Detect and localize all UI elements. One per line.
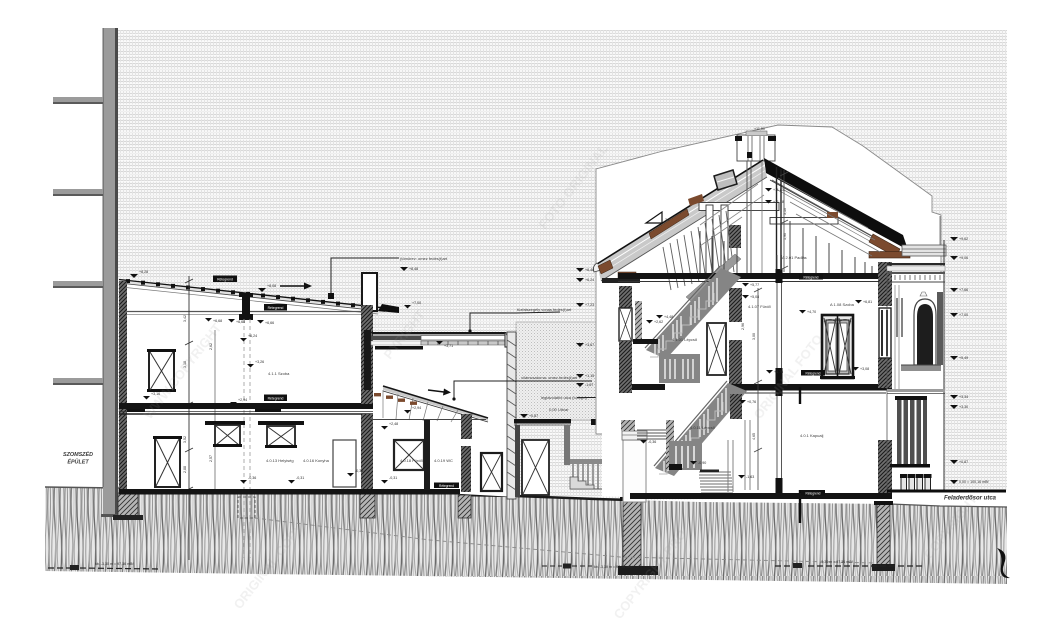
svg-text:+6,24: +6,24 — [248, 334, 257, 338]
svg-text:+3,26: +3,26 — [255, 360, 264, 364]
svg-text:+6,68: +6,68 — [236, 320, 245, 324]
svg-text:+0,76: +0,76 — [747, 400, 756, 404]
svg-text:+7,23: +7,23 — [585, 303, 594, 307]
svg-text:+3,34: +3,34 — [959, 395, 968, 399]
svg-text:-0,36: -0,36 — [355, 469, 363, 473]
svg-text:+0,87: +0,87 — [959, 460, 968, 464]
svg-text:4.1.1 Szoba: 4.1.1 Szoba — [268, 371, 290, 376]
svg-text:+8,28: +8,28 — [139, 270, 148, 274]
svg-text:+2,94: +2,94 — [238, 398, 247, 402]
svg-text:4.1.01 Lépcső: 4.1.01 Lépcső — [672, 337, 698, 342]
svg-text:4.0.16 Konyha: 4.0.16 Konyha — [303, 458, 330, 463]
svg-text:+11,18: +11,18 — [773, 200, 784, 204]
svg-text:0,00 Udvar: 0,00 Udvar — [549, 407, 569, 412]
svg-text:+3,71: +3,71 — [444, 344, 453, 348]
svg-text:+7,00: +7,00 — [412, 301, 421, 305]
svg-text:Rétegrend: Rétegrend — [217, 278, 233, 282]
svg-text:+6,81: +6,81 — [863, 300, 872, 304]
svg-text:+2,48: +2,48 — [389, 422, 398, 426]
svg-text:-0,31: -0,31 — [296, 476, 304, 480]
svg-text:4,65: 4,65 — [752, 433, 756, 440]
svg-text:4.0.11 Lépcső: 4.0.11 Lépcső — [690, 425, 716, 430]
svg-text:+5,08: +5,08 — [750, 295, 759, 299]
svg-text:34°: 34° — [665, 218, 671, 222]
svg-text:-0,90: -0,90 — [698, 461, 706, 465]
svg-text:4.0.13 Helyiség: 4.0.13 Helyiség — [266, 458, 294, 463]
svg-text:A 1.08 Szoba: A 1.08 Szoba — [830, 302, 855, 307]
svg-text:Rétegrend: Rétegrend — [806, 372, 821, 376]
svg-text:Rétegrend: Rétegrend — [439, 484, 454, 488]
svg-text:Rétegrend: Rétegrend — [268, 397, 284, 401]
svg-text:+8,48: +8,48 — [409, 267, 418, 271]
svg-text:+6,66: +6,66 — [265, 321, 274, 325]
svg-text:-1,63: -1,63 — [746, 475, 754, 479]
svg-text:(tömörev: omez fedés(t)art: (tömörev: omez fedés(t)art — [400, 256, 448, 261]
svg-text:+4,48: +4,48 — [664, 315, 673, 319]
svg-text:3,42: 3,42 — [183, 315, 187, 322]
svg-text:4.0.18 Fürdő: 4.0.18 Fürdő — [400, 458, 423, 463]
svg-text:kb. -3,30 m = 97,36 mBf: kb. -3,30 m = 97,36 mBf — [594, 565, 632, 569]
svg-text:+6,24: +6,24 — [585, 278, 594, 282]
svg-text:legtávolabbi utca (turfajel): legtávolabbi utca (turfajel) — [541, 395, 587, 400]
svg-text:+0,87: +0,87 — [529, 414, 538, 418]
svg-text:2,88: 2,88 — [183, 466, 187, 473]
svg-text:+9,62: +9,62 — [959, 237, 968, 241]
svg-text:SZOMSZÉD: SZOMSZÉD — [63, 450, 93, 458]
svg-text:+2,94: +2,94 — [412, 406, 421, 410]
svg-text:0,00 = 100,16 mBf: 0,00 = 100,16 mBf — [959, 480, 988, 484]
svg-text:kb. -3,30 m = 97,36 mBf: kb. -3,30 m = 97,36 mBf — [95, 562, 133, 566]
svg-text:-1,67: -1,67 — [585, 383, 593, 387]
svg-text:2,57: 2,57 — [209, 455, 213, 462]
svg-text:+3,30: +3,30 — [959, 405, 968, 409]
svg-text:+5,77: +5,77 — [750, 283, 759, 287]
svg-text:+2,62: +2,62 — [654, 320, 663, 324]
svg-text:+7,66: +7,66 — [959, 288, 968, 292]
svg-text:vílámcsatorna: omez fedés(t)ar: vílámcsatorna: omez fedés(t)art — [521, 375, 578, 380]
svg-text:-0,31: -0,31 — [389, 476, 397, 480]
svg-text:Rétegrend: Rétegrend — [806, 492, 821, 496]
svg-text:2,96: 2,96 — [741, 323, 745, 330]
svg-text:-3,30 m = 97,36 mBf: -3,30 m = 97,36 mBf — [820, 560, 853, 564]
svg-text:+11,83: +11,83 — [773, 188, 784, 192]
svg-text:A 2.01 Padlás: A 2.01 Padlás — [782, 255, 807, 260]
svg-text:ÉPÜLET: ÉPÜLET — [67, 458, 89, 466]
svg-text:-0,36: -0,36 — [648, 440, 656, 444]
svg-text:+6,46: +6,46 — [585, 268, 594, 272]
svg-text:+3,08: +3,08 — [860, 367, 869, 371]
svg-text:4.0.1 Kapualj: 4.0.1 Kapualj — [800, 433, 823, 438]
svg-text:3,52: 3,52 — [183, 436, 187, 443]
svg-text:+8,08: +8,08 — [267, 284, 276, 288]
svg-text:+11,50: +11,50 — [754, 127, 765, 131]
svg-text:+4,70: +4,70 — [807, 310, 816, 314]
svg-text:+3,67: +3,67 — [585, 343, 594, 347]
svg-text:Rétegrend: Rétegrend — [804, 276, 819, 280]
svg-text:4.0.19 WC: 4.0.19 WC — [434, 458, 453, 463]
svg-text:Rétegrend: Rétegrend — [268, 306, 284, 310]
svg-text:-0,36: -0,36 — [248, 476, 256, 480]
svg-text:+5,49: +5,49 — [959, 356, 968, 360]
svg-text:4.1.07 Fürdő: 4.1.07 Fürdő — [748, 304, 771, 309]
svg-text:+1,15: +1,15 — [585, 374, 594, 378]
svg-text:+7,00: +7,00 — [959, 313, 968, 317]
svg-text:tüzfalszegély vonas fedés(t)ar: tüzfalszegély vonas fedés(t)art — [517, 307, 572, 312]
svg-text:+9,06: +9,06 — [959, 256, 968, 260]
svg-text:3,00: 3,00 — [752, 333, 756, 340]
